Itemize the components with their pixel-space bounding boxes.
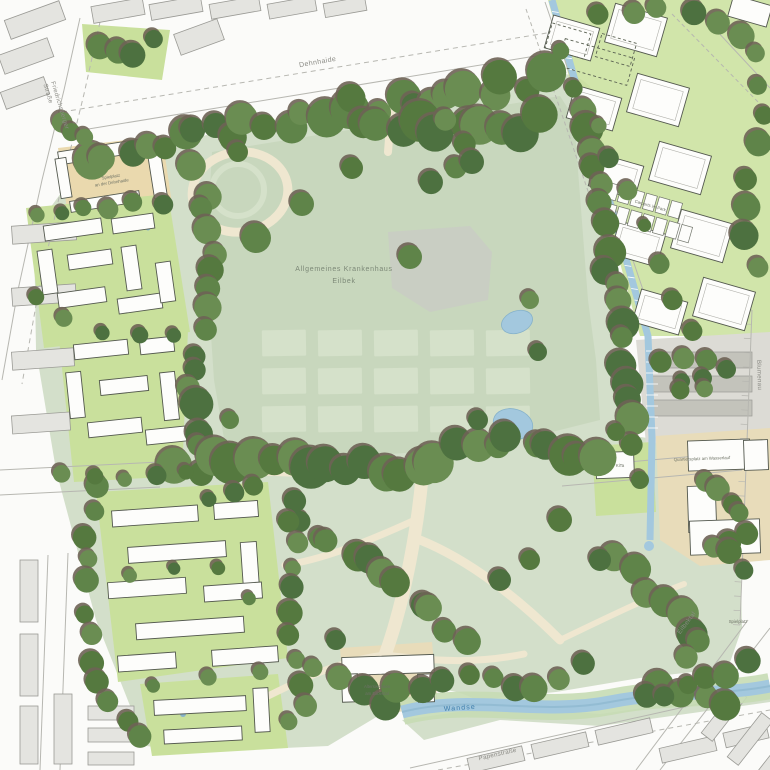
svg-text:am Eilbektal: am Eilbektal	[365, 691, 388, 696]
hospital-label-line1: Allgemeines Krankenhaus	[295, 266, 392, 273]
kita-label: KiTa	[616, 463, 625, 468]
street-label-blumenau: Blumenau	[755, 360, 763, 391]
masterplan-canvas: Dehnhaide Friedrichsberger Straße Blumen…	[0, 0, 770, 770]
svg-text:Alterswohnen: Alterswohnen	[364, 684, 391, 689]
site-plan-map: Dehnhaide Friedrichsberger Straße Blumen…	[0, 0, 770, 770]
playground-se-label: Spielplatz	[729, 619, 748, 624]
hospital-label-line2: Eilbek	[332, 278, 355, 285]
